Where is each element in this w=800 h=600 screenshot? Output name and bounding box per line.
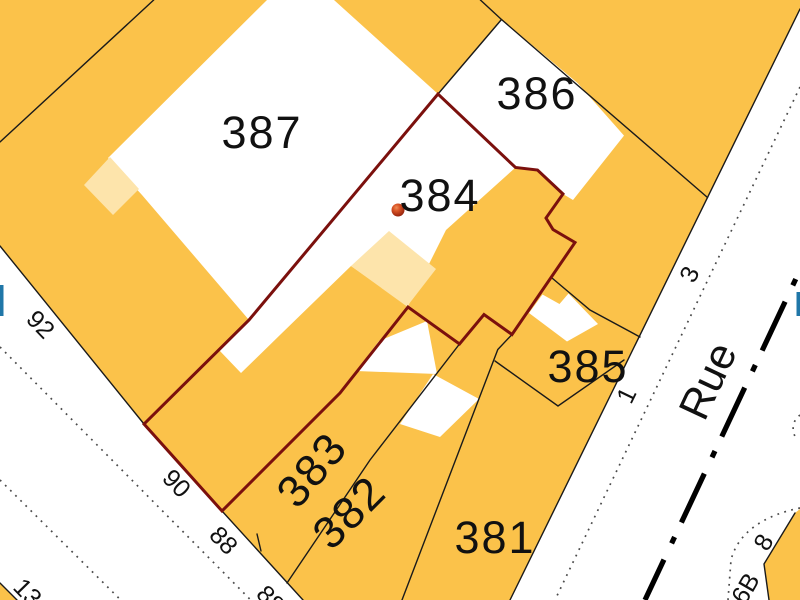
svg-text:384: 384 bbox=[399, 170, 480, 221]
svg-text:386: 386 bbox=[496, 68, 577, 119]
svg-text:381: 381 bbox=[454, 512, 535, 563]
svg-text:387: 387 bbox=[221, 107, 302, 158]
